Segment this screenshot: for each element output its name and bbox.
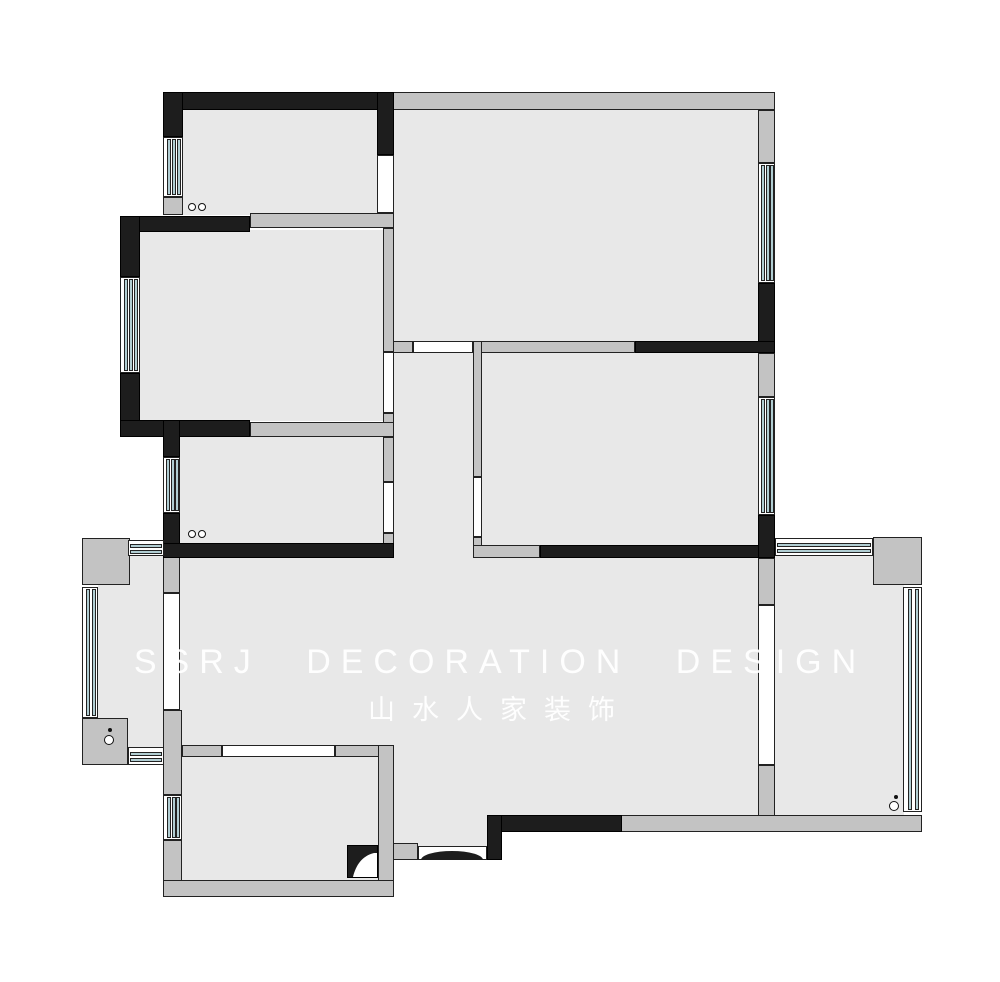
dining-floor: [180, 557, 394, 746]
entry-wall-horizontal: [487, 815, 622, 832]
room-mid-left-door-opening: [383, 352, 394, 413]
kitchen-bottom-wall: [163, 880, 394, 897]
bedroom-right-window: [758, 397, 775, 515]
bedroom-right-se-corner: [758, 515, 775, 558]
kitchen-right-wall: [378, 745, 394, 897]
window-pane: [915, 589, 919, 810]
living-window: [758, 163, 775, 283]
vestibule-floor: [394, 745, 487, 851]
room-small-left-left-wall-upper: [163, 420, 180, 457]
living-room-floor: [394, 110, 758, 342]
balcony-right-slider-opening: [758, 605, 775, 765]
room-small-left-bottom-wall: [163, 543, 394, 558]
window-pane: [86, 589, 90, 716]
window-pane: [134, 279, 138, 371]
room-mid-left-right-wall-upper: [383, 228, 394, 352]
balcony-right-drain-marker: [889, 801, 899, 811]
bedroom-right-floor: [481, 353, 758, 546]
living-bottom-wall-mid: [473, 341, 635, 353]
living-corridor-opening: [413, 341, 473, 353]
room-top-left-marker-b: [198, 203, 206, 211]
kitchen-pass-opening: [222, 745, 335, 757]
balcony-left-window-top: [128, 540, 164, 556]
window-pane: [777, 549, 871, 553]
window-pane: [167, 139, 171, 195]
corridor-floor: [394, 352, 473, 558]
balcony-left-corner-nw: [82, 538, 130, 585]
room-top-left-door-opening: [377, 155, 394, 213]
floor-plan-page: SSRJ DECORATION DESIGN 山水人家装饰: [0, 0, 1000, 982]
balcony-right-corner-ne: [873, 537, 922, 585]
bedroom-right-bottom-wall: [540, 545, 775, 558]
living-right-wall-upper: [758, 110, 775, 163]
window-pane: [175, 459, 179, 511]
balcony-left-slider-opening: [163, 593, 180, 710]
balcony-left-dot-marker: [108, 728, 112, 732]
room-top-left-right-wall: [377, 92, 394, 155]
kitchen-flue-symbol: [347, 845, 378, 878]
balcony-right-sep-wall-upper: [758, 558, 775, 605]
window-pane: [177, 139, 181, 195]
window-pane: [908, 589, 912, 810]
balcony-right-floor: [775, 556, 904, 816]
room-top-left-floor: [180, 110, 377, 215]
bedroom-right-left-wall-upper: [473, 341, 482, 477]
window-pane: [129, 279, 133, 371]
room-small-left-marker-a: [188, 530, 196, 538]
room-small-left-floor: [180, 436, 383, 544]
room-mid-left-left-wall-upper: [120, 216, 140, 277]
window-pane: [130, 758, 162, 762]
living-bottom-wall-right: [635, 341, 775, 353]
window-pane: [124, 279, 128, 371]
balcony-left-window-west: [82, 587, 98, 718]
room-top-left-left-wall: [163, 92, 183, 137]
kitchen-top-wall-left: [182, 745, 222, 757]
bedroom-right-door-opening: [473, 477, 482, 537]
balcony-left-drain-marker: [104, 735, 114, 745]
living-top-wall: [393, 92, 775, 110]
room-mid-left-floor: [140, 230, 384, 421]
window-pane: [167, 797, 171, 838]
room-small-left-window: [163, 457, 180, 513]
balcony-left-window-bottom: [128, 747, 164, 765]
room-top-left-marker-a: [188, 203, 196, 211]
window-pane: [176, 797, 180, 838]
balcony-right-window-top: [775, 538, 873, 556]
bedroom-right-right-wall-upper: [758, 353, 775, 397]
south-perimeter-wall: [620, 815, 922, 832]
room-mid-left-bottom-wall: [120, 420, 250, 437]
room-top-left-bottom-wall: [250, 213, 394, 228]
entry-wall-vertical: [487, 815, 502, 860]
window-pane: [777, 543, 871, 547]
room-mid-left-window: [120, 277, 140, 373]
kitchen-window: [163, 795, 182, 840]
window-pane: [770, 399, 774, 513]
window-pane: [92, 589, 96, 716]
living-bottom-wall-left: [393, 341, 413, 353]
room-small-left-top-wall: [250, 422, 394, 437]
room-small-left-right-wall-upper: [383, 437, 394, 482]
room-top-left-stub-wall: [163, 197, 183, 215]
balcony-right-window-east: [903, 587, 922, 812]
room-small-left-marker-b: [198, 530, 206, 538]
bedroom-right-bottom-wall-left: [473, 545, 540, 558]
window-pane: [172, 797, 176, 838]
window-pane: [130, 550, 162, 554]
window-pane: [130, 544, 162, 548]
room-top-left-top-wall: [163, 92, 394, 110]
window-pane: [172, 139, 176, 195]
window-pane: [130, 752, 162, 756]
kitchen-left-wall-upper: [163, 710, 182, 795]
room-top-left-window: [163, 137, 183, 197]
room-small-left-door-opening: [383, 482, 394, 533]
entry-side-stub-wall: [393, 843, 418, 860]
balcony-left-sep-wall-upper: [163, 553, 180, 593]
window-pane: [770, 165, 774, 281]
balcony-right-dot-marker: [894, 795, 898, 799]
